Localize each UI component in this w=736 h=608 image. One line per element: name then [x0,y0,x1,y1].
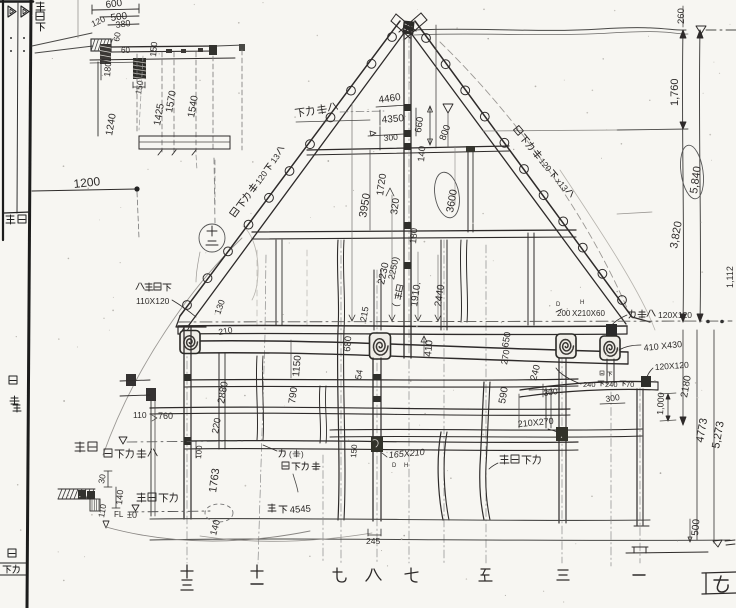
svg-text:100: 100 [194,445,204,460]
svg-text:60: 60 [121,46,130,55]
svg-text:680: 680 [342,336,354,353]
svg-text:(: ( [289,450,292,459]
svg-text:300: 300 [543,386,559,398]
svg-text:110X120: 110X120 [136,296,170,306]
svg-text:): ) [301,450,304,459]
svg-text:4350: 4350 [381,113,405,126]
svg-text:1,760: 1,760 [669,78,681,106]
svg-text:300: 300 [605,392,621,404]
svg-text:70: 70 [626,380,634,389]
svg-text:D: D [392,463,397,469]
svg-text:120X120: 120X120 [658,310,692,320]
svg-text:500: 500 [690,518,702,536]
svg-text:150: 150 [148,41,159,57]
svg-text:H: H [404,463,408,469]
svg-text:FL: FL [114,510,124,519]
svg-text:240: 240 [583,380,596,389]
svg-text:140: 140 [416,146,428,163]
svg-text:H: H [580,300,584,306]
svg-text:300: 300 [383,132,398,143]
svg-text:150: 150 [349,444,359,459]
svg-text:1,000: 1,000 [655,392,666,415]
svg-text:54: 54 [353,369,365,381]
svg-text:240: 240 [605,380,618,389]
svg-text:4545: 4545 [289,504,311,516]
svg-text:660: 660 [413,116,426,133]
svg-text:245: 245 [366,536,380,546]
svg-text:380: 380 [115,18,131,30]
svg-text:60: 60 [111,31,123,42]
svg-text:1,112: 1,112 [725,266,735,288]
svg-text:1150: 1150 [291,354,304,377]
svg-text:D: D [556,302,561,308]
svg-text:±0: ±0 [127,510,137,520]
svg-text:X210X60: X210X60 [572,309,605,318]
svg-text:110: 110 [133,410,147,420]
svg-text:1200: 1200 [73,174,101,191]
svg-text:180: 180 [408,228,420,245]
svg-text:760: 760 [158,411,173,421]
svg-text:140: 140 [114,489,125,505]
svg-text:260: 260 [676,8,687,24]
svg-text:30: 30 [96,473,108,484]
svg-text:180: 180 [102,61,113,77]
